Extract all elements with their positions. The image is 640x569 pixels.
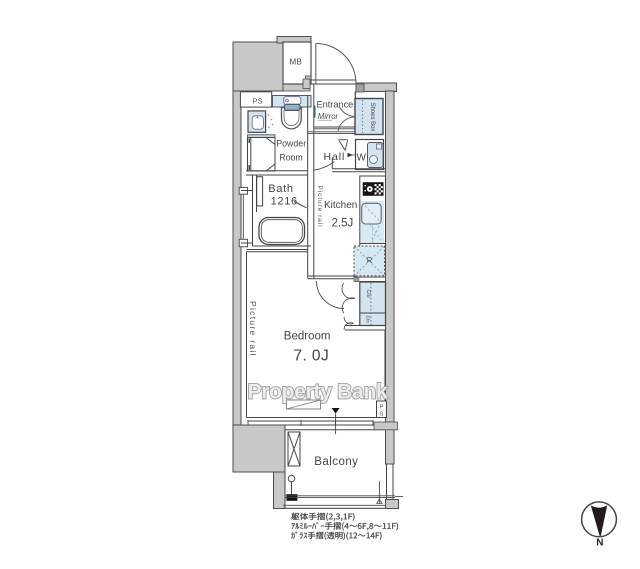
- svg-text:1216: 1216: [271, 196, 298, 208]
- svg-text:N: N: [596, 538, 603, 549]
- svg-text:P: P: [380, 405, 384, 411]
- svg-text:Hall: Hall: [324, 151, 346, 163]
- svg-text:Picture rail: Picture rail: [316, 186, 323, 228]
- svg-text:S: S: [380, 412, 384, 418]
- svg-text:Clo: Clo: [365, 290, 371, 298]
- svg-text:Entrance: Entrance: [317, 99, 354, 109]
- svg-text:Picture rail: Picture rail: [248, 301, 258, 357]
- svg-text:Kitchen: Kitchen: [324, 200, 357, 211]
- svg-text:Powder: Powder: [276, 138, 306, 148]
- svg-text:Mirror: Mirror: [318, 112, 339, 121]
- svg-text:7. 0J: 7. 0J: [294, 348, 330, 365]
- svg-text:PS: PS: [253, 97, 264, 106]
- svg-text:2.5J: 2.5J: [332, 218, 354, 230]
- svg-text:MB: MB: [290, 58, 303, 67]
- svg-text:Balcony: Balcony: [314, 456, 358, 468]
- svg-text:W: W: [357, 153, 367, 164]
- svg-text:Shoes Box: Shoes Box: [369, 103, 375, 132]
- svg-text:Bedroom: Bedroom: [284, 331, 331, 343]
- svg-text:Clo: Clo: [365, 316, 371, 324]
- svg-text:R: R: [367, 256, 373, 265]
- svg-text:Room: Room: [279, 152, 302, 162]
- svg-text:Bath: Bath: [268, 183, 293, 195]
- svg-text:Property Bank: Property Bank: [248, 380, 389, 403]
